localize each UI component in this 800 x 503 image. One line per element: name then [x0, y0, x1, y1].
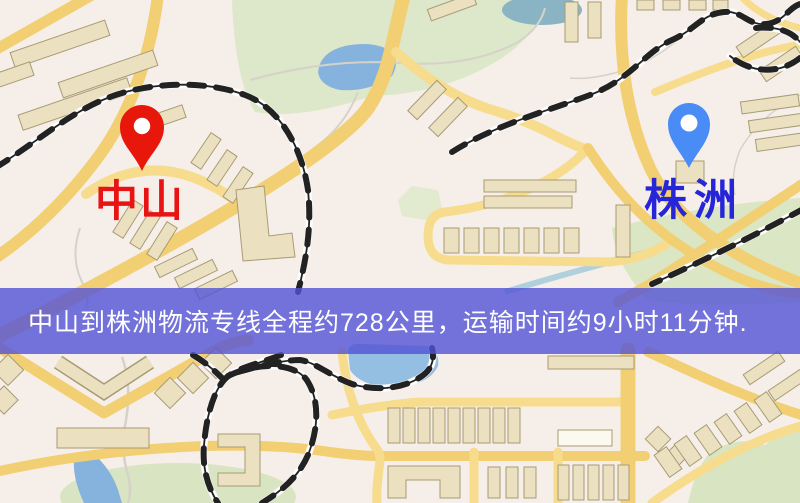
origin-pin-hole	[134, 118, 150, 134]
destination-pin-hole	[681, 115, 698, 132]
destination-city-label: 株洲	[644, 180, 744, 223]
route-banner: 中山到株洲物流专线全程约728公里，运输时间约9小时11分钟.	[0, 288, 800, 354]
origin-city-label: 中山	[95, 181, 185, 224]
route-banner-text: 中山到株洲物流专线全程约728公里，运输时间约9小时11分钟.	[28, 303, 748, 339]
map-canvas	[0, 0, 800, 503]
map-view: 中山 株洲 中山到株洲物流专线全程约728公里，运输时间约9小时11分钟.	[0, 0, 800, 503]
